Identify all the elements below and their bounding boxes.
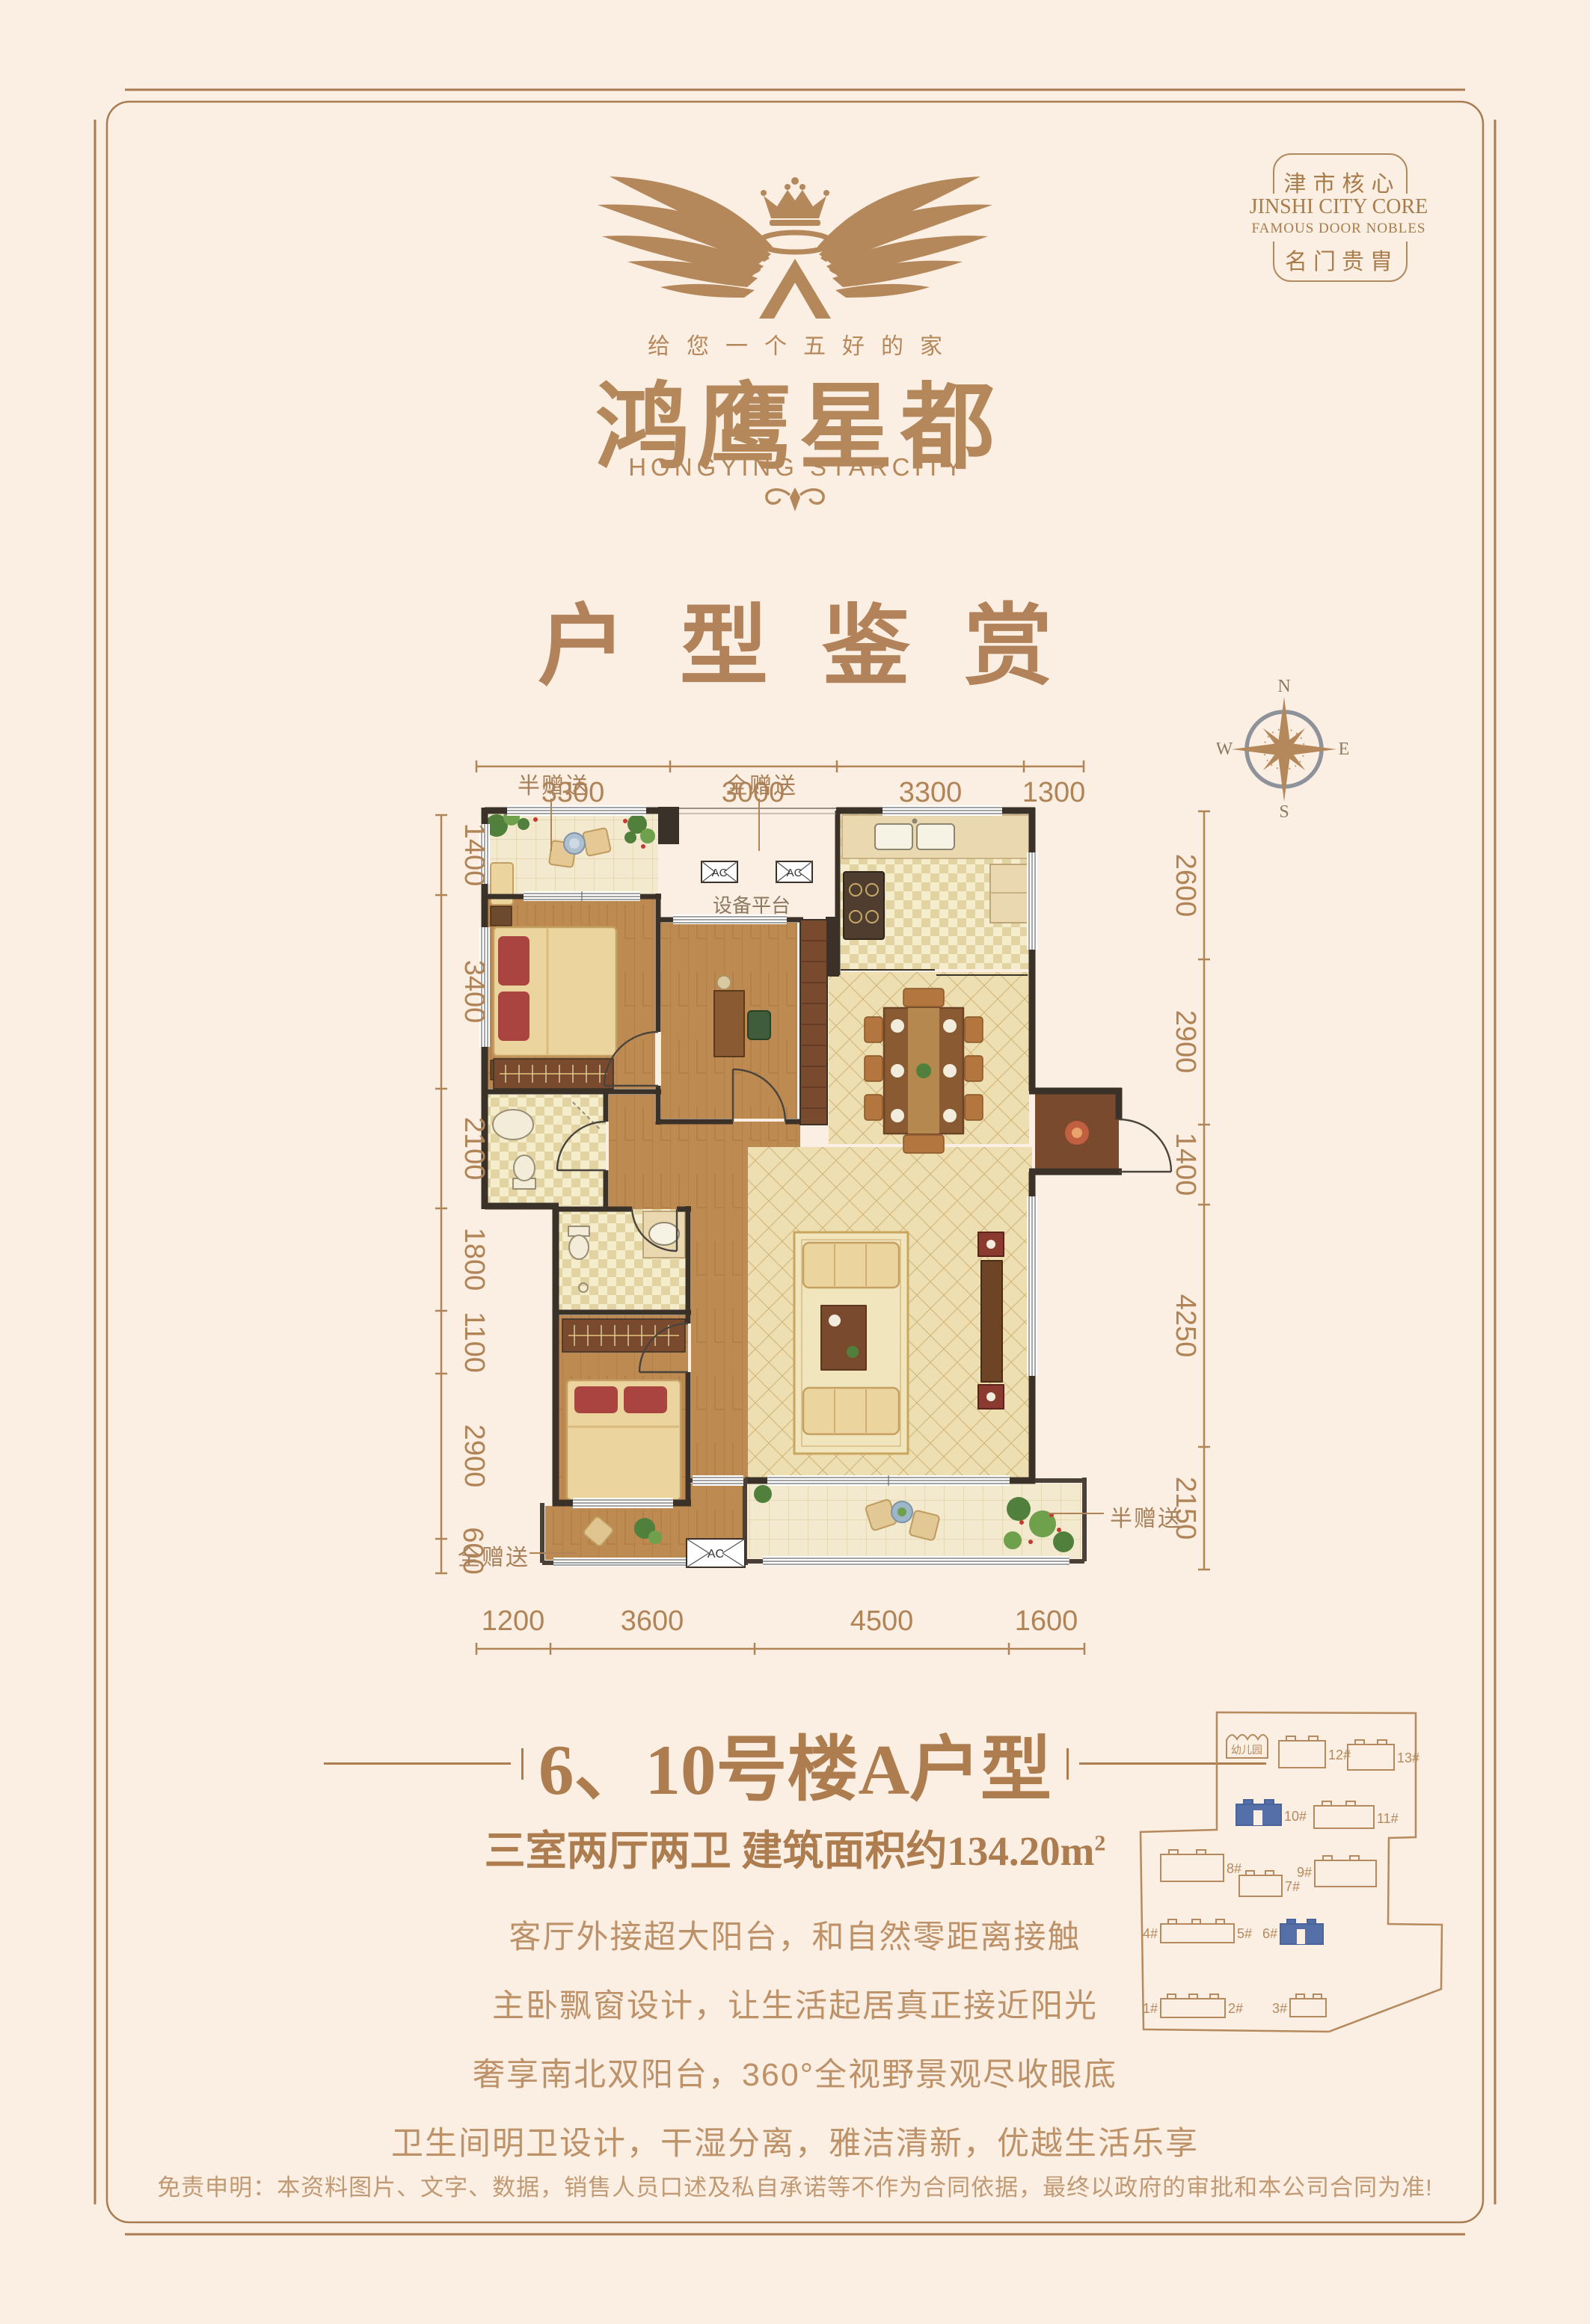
callout-full-gift-top: 全赠送 [725,767,797,800]
building-11 [1314,1801,1374,1828]
svg-text:2100: 2100 [458,1117,490,1181]
title-tick-left [521,1748,524,1780]
svg-text:1#: 1# [1143,2001,1158,2016]
unit-subtitle-text: 三室两厅两卫 建筑面积约134.20m [485,1828,1095,1874]
svg-text:8#: 8# [1227,1861,1241,1876]
site-plan: 幼儿园 12# 13# 10# 11# 8# 9# 7# 4# 5# [1122,1694,1451,2060]
svg-text:3400: 3400 [458,960,490,1024]
ac-unit-icon: AC [776,861,812,882]
flourish-icon [758,485,832,514]
compass-n: N [1277,677,1290,696]
callout-full-gift-bottom: 全赠送 [458,1539,530,1572]
site-buildings [1161,1736,1394,2017]
area-superscript: 2 [1094,1831,1105,1856]
svg-text:5#: 5# [1237,1926,1252,1941]
svg-text:AC: AC [787,867,802,879]
svg-text:幼儿园: 幼儿园 [1231,1744,1262,1756]
svg-text:4#: 4# [1143,1926,1158,1941]
badge-en-line2: FAMOUS DOOR NOBLES [1221,221,1457,237]
compass-e: E [1339,740,1350,759]
building-13 [1348,1740,1394,1770]
title-tick-right [1066,1748,1069,1780]
location-badge: 津市核心 JINSHI CITY CORE FAMOUS DOOR NOBLES… [1221,153,1457,282]
svg-text:AC: AC [712,867,728,879]
left-wing-icon [598,176,773,298]
svg-text:3600: 3600 [621,1605,684,1637]
eagle-body [759,259,831,319]
compass-s: S [1279,802,1289,819]
crown-icon [761,177,829,226]
svg-text:1800: 1800 [458,1228,490,1291]
building-10 [1236,1800,1281,1825]
callout-half-gift-right: 半赠送 [1110,1500,1182,1533]
svg-text:1400: 1400 [458,823,490,887]
building-1-2 [1161,1994,1225,2017]
svg-text:13#: 13# [1397,1750,1419,1765]
svg-text:12#: 12# [1328,1747,1351,1762]
ac-unit-icon: AC [687,1539,745,1567]
badge-en-line1: JINSHI CITY CORE [1221,195,1457,219]
svg-text:1300: 1300 [1022,777,1086,808]
building-4-5 [1161,1919,1234,1943]
svg-text:7#: 7# [1285,1879,1300,1894]
svg-text:2600: 2600 [1170,854,1201,917]
svg-text:2900: 2900 [458,1424,490,1488]
svg-text:11#: 11# [1377,1811,1399,1826]
svg-text:1400: 1400 [1170,1133,1201,1196]
svg-text:2900: 2900 [1170,1010,1201,1074]
disclaimer: 免责申明：本资料图片、文字、数据，销售人员口述及私自承诺等不作为合同依据，最终以… [0,2168,1590,2202]
callout-half-gift-top: 半赠送 [518,767,589,800]
badge-cn-top: 津市核心 [1221,165,1457,198]
equipment-platform-label: 设备平台 [713,894,791,917]
svg-text:2#: 2# [1228,2001,1243,2016]
building-12 [1279,1736,1325,1768]
floor-plan: AC AC AC 设备平台 [419,703,1271,1697]
building-7 [1239,1871,1282,1896]
poster-page: 津市核心 JINSHI CITY CORE FAMOUS DOOR NOBLES… [0,0,1590,2324]
svg-text:3#: 3# [1272,2001,1287,2016]
right-wing-icon [817,176,992,298]
building-3 [1290,1994,1326,2017]
svg-text:9#: 9# [1297,1865,1312,1880]
site-kindergarten: 幼儿园 [1227,1735,1268,1758]
svg-text:4500: 4500 [850,1605,914,1637]
building-6 [1280,1919,1323,1944]
svg-text:1100: 1100 [458,1312,490,1373]
building-8 [1161,1850,1224,1881]
svg-text:3300: 3300 [899,777,963,808]
svg-text:AC: AC [707,1548,724,1561]
svg-text:6#: 6# [1262,1926,1277,1941]
page-title: 户型鉴赏 [234,574,1356,702]
svg-text:1200: 1200 [482,1605,545,1637]
svg-text:1600: 1600 [1015,1605,1078,1637]
brand-name-en: HONGYING STARCITY [458,453,1132,482]
badge-cn-bottom: 名门贵胄 [1221,243,1457,276]
svg-text:4250: 4250 [1170,1294,1201,1358]
svg-text:10#: 10# [1284,1809,1307,1824]
title-rule-left [324,1762,511,1765]
ac-unit-icon: AC [702,861,737,882]
unit-title: 6、10号楼A户型 [538,1712,1052,1815]
building-9 [1315,1856,1376,1887]
wings-crown-logo-icon [571,170,1019,328]
